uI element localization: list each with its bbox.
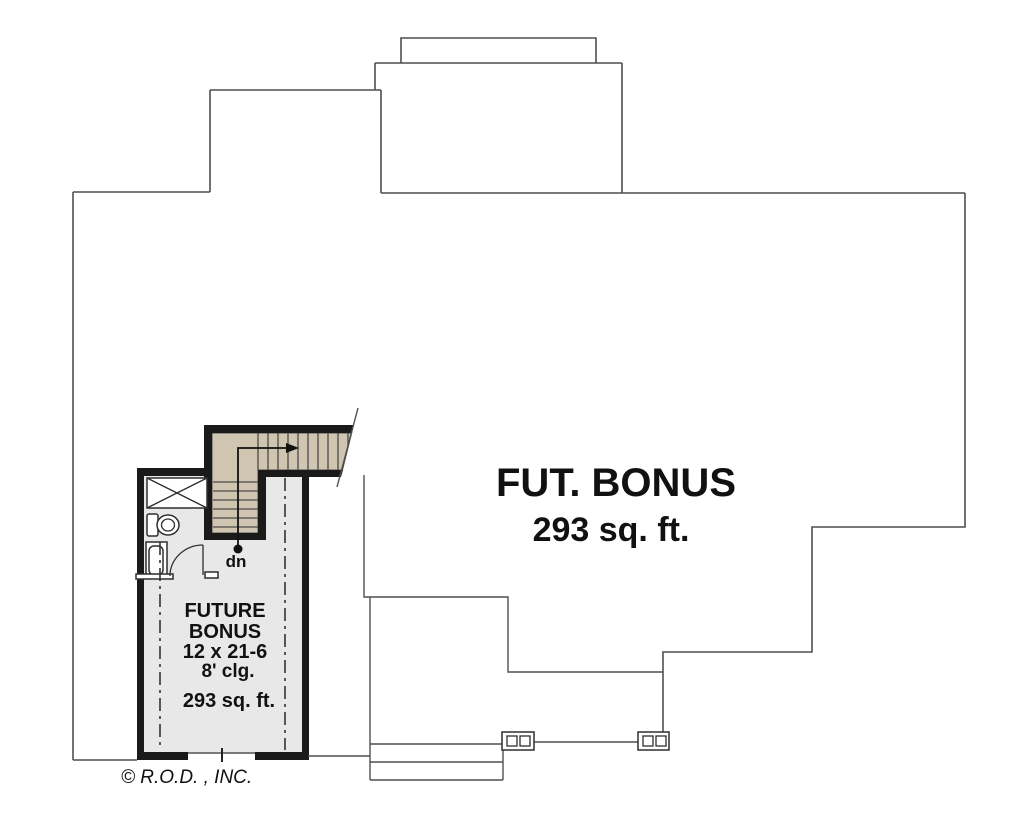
- room-dimensions: 12 x 21-6: [183, 641, 268, 663]
- stair-down-label: dn: [226, 552, 247, 571]
- room-ceiling-height: 8' clg.: [201, 661, 254, 682]
- room-bottom-wall-left: [137, 752, 188, 760]
- copyright-text: © R.O.D. , INC.: [121, 767, 252, 788]
- room-left-wall: [137, 468, 144, 760]
- floor-plan-page: dn FUT. BONUS 293 sq. ft. FUTURE BONUS 1…: [0, 0, 1024, 840]
- stair-mid-wall: [258, 470, 343, 477]
- room-bottom-wall-right: [255, 752, 309, 760]
- main-area-label: FUT. BONUS: [496, 461, 736, 505]
- room-top-wall: [137, 468, 210, 476]
- main-area-sqft: 293 sq. ft.: [533, 511, 690, 549]
- room-label-line2: BONUS: [189, 621, 261, 643]
- room-right-wall: [302, 470, 309, 758]
- closet-icon: [147, 478, 207, 508]
- stair-top-wall: [204, 425, 354, 433]
- toilet-icon: [147, 514, 179, 536]
- stair-right-wall: [258, 477, 266, 540]
- stair-bottom-wall: [204, 533, 266, 540]
- room-label-line1: FUTURE: [184, 600, 265, 622]
- vent-icon-right: [638, 732, 669, 750]
- room-area: 293 sq. ft.: [183, 690, 275, 712]
- floor-plan-canvas: dn FUT. BONUS 293 sq. ft. FUTURE BONUS 1…: [0, 0, 1024, 840]
- vent-icon-left: [502, 732, 534, 750]
- sink-icon: [146, 542, 167, 578]
